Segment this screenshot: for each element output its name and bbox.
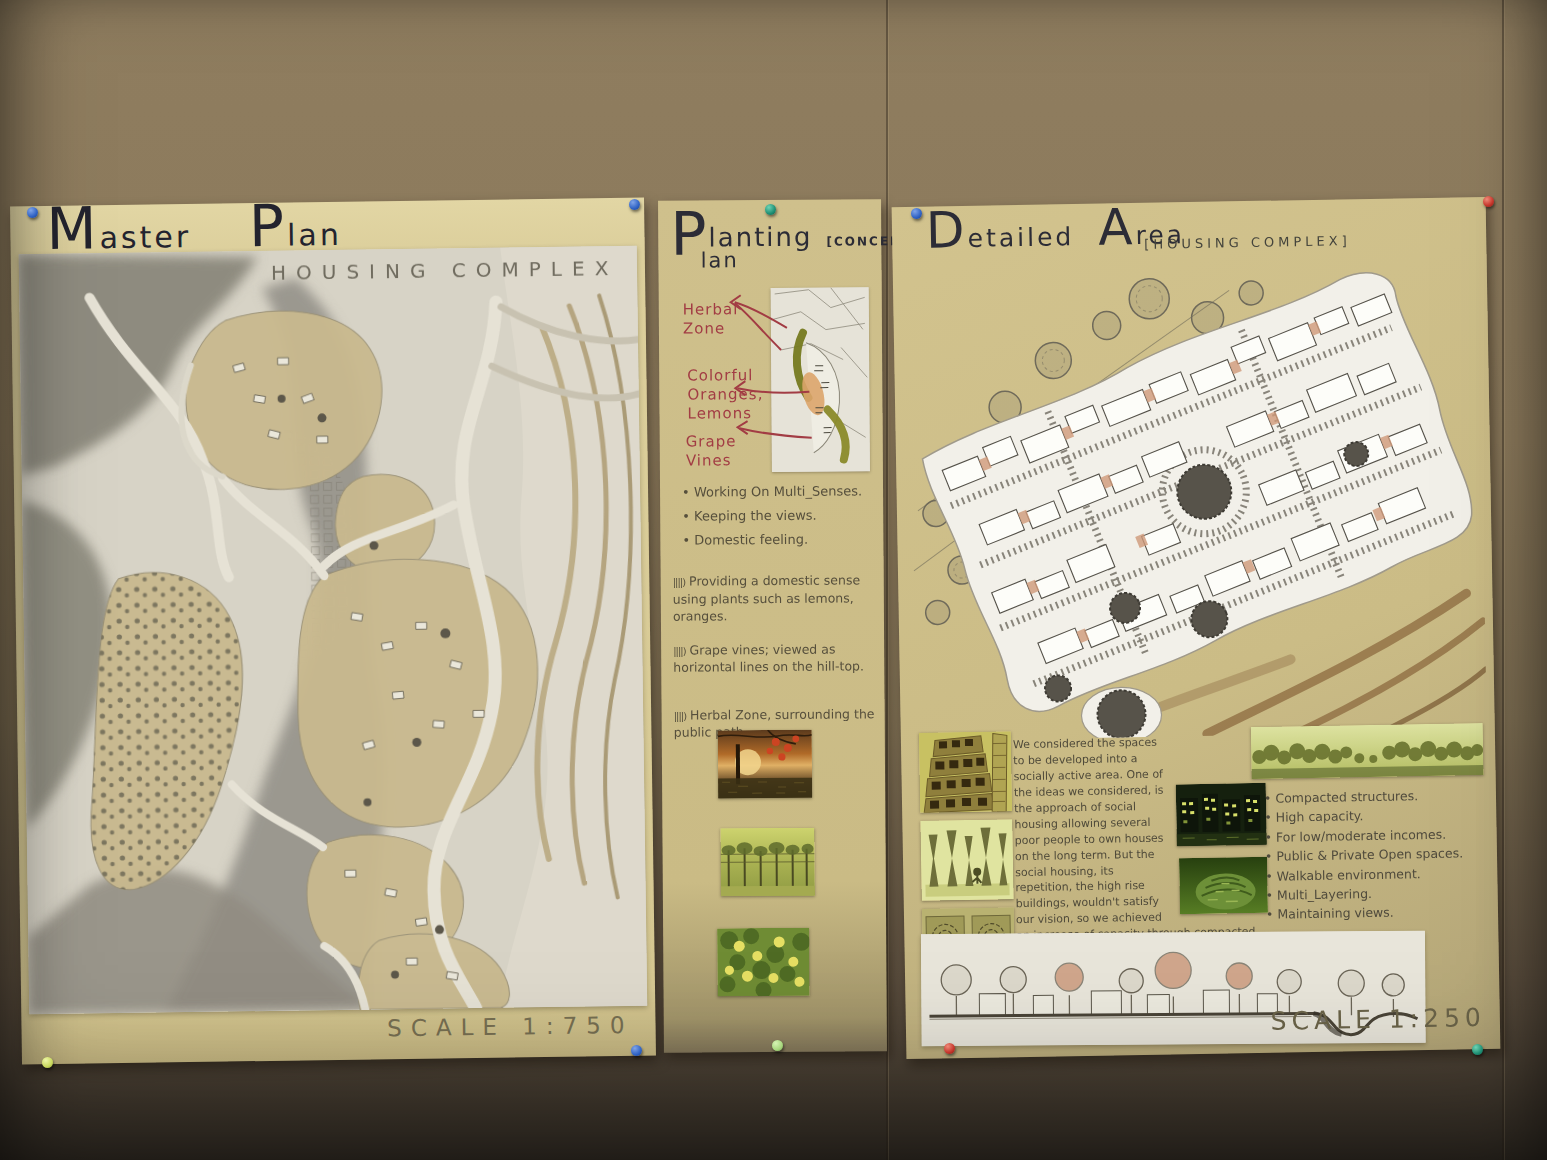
master-plan-drawing (19, 246, 648, 1015)
push-pin-blue-icon (629, 199, 640, 210)
orange-trees-photo (718, 730, 812, 799)
oranges-lemons-label: Colorful Oranges, Lemons (687, 366, 763, 423)
green-terraces-photo (1179, 857, 1268, 915)
note-item: ||||)Grape vines; viewed as horizontal l… (673, 640, 875, 676)
bullet-item: Working On Multi_Senses. (682, 483, 862, 499)
lemon-tree-photo (717, 928, 809, 997)
push-pin-blue-icon (631, 1045, 642, 1056)
pillars-concept-sketch (920, 819, 1013, 901)
title-word: Master (46, 206, 191, 256)
poster-planting-plan: P lanting [CONCEPT] lan (658, 199, 887, 1053)
push-pin-red-icon (1483, 196, 1494, 207)
master-plan-subtitle: HOUSING COMPLEX (271, 256, 619, 285)
push-pin-blue-icon (27, 207, 38, 218)
grape-vineyard-photo (720, 828, 814, 897)
detailed-bullet-list: Compacted structures. High capacity. For… (1264, 785, 1492, 925)
title-word: Detailed (926, 210, 1075, 254)
bullet-item: Public & Private Open spaces. (1265, 843, 1491, 866)
grape-vines-label: Grape Vines (686, 432, 737, 470)
note-text: Grape vines; viewed as horizontal lines … (673, 641, 864, 675)
push-pin-blue-icon (911, 208, 922, 219)
note-marker: ||||) (673, 577, 685, 588)
planting-bullet-list: Working On Multi_Senses. Keeping the vie… (682, 483, 863, 556)
push-pin-green-icon (1472, 1044, 1483, 1055)
poster-detailed-area: DetailedArea [HOUSING COMPLEX] (892, 197, 1501, 1059)
master-plan-scale-label: SCALE 1:750 (387, 1012, 634, 1041)
wall-seam (1502, 0, 1504, 1160)
note-item: ||||)Providing a domestic sense using pl… (673, 571, 875, 625)
poster-master-plan: MasterPlan (10, 198, 656, 1065)
master-plan-title: MasterPlan (46, 204, 342, 256)
bullet-item: Keeping the views. (682, 507, 862, 523)
pinboard-wall-photo: MasterPlan (0, 0, 1547, 1160)
title-word: Plan (249, 204, 342, 253)
planting-concept-map-drawing (771, 287, 870, 472)
tree-line-panorama (1251, 723, 1484, 779)
bullet-item: Domestic feeling. (682, 531, 862, 547)
detailed-area-tag: [HOUSING COMPLEX] (1144, 233, 1351, 252)
note-text: Providing a domestic sense using plants … (673, 572, 860, 623)
master-plan-map-sheet: HOUSING COMPLEX (19, 246, 648, 1015)
note-marker: ||||) (673, 645, 685, 656)
planting-plan-title: P lanting [CONCEPT] lan (670, 207, 919, 273)
title-word: lan (701, 247, 919, 273)
detailed-site-plan (899, 261, 1487, 741)
push-pin-yellow-green-icon (42, 1057, 53, 1068)
planting-concept-map (771, 287, 870, 472)
building-collage-sketch (919, 731, 1012, 813)
push-pin-light-green-icon (772, 1040, 783, 1051)
push-pin-red-icon (944, 1043, 955, 1054)
detailed-site-plan-drawing (899, 261, 1487, 741)
detailed-area-scale-label: SCALE 1:250 (1270, 1003, 1486, 1036)
push-pin-green-icon (765, 204, 776, 215)
night-buildings-photo (1176, 783, 1267, 847)
note-marker: ||||) (674, 710, 686, 721)
bullet-item: Maintaining views. (1266, 901, 1492, 924)
herbal-zone-label: Herbal Zone (683, 300, 739, 338)
